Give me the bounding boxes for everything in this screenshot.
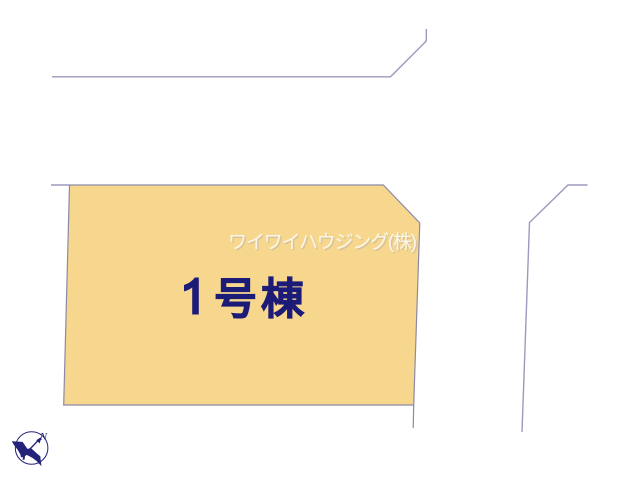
svg-text:号棟: 号棟 <box>214 276 308 324</box>
svg-text:ワイワイハウジング(株): ワイワイハウジング(株) <box>228 231 417 253</box>
svg-text:N: N <box>39 431 48 443</box>
